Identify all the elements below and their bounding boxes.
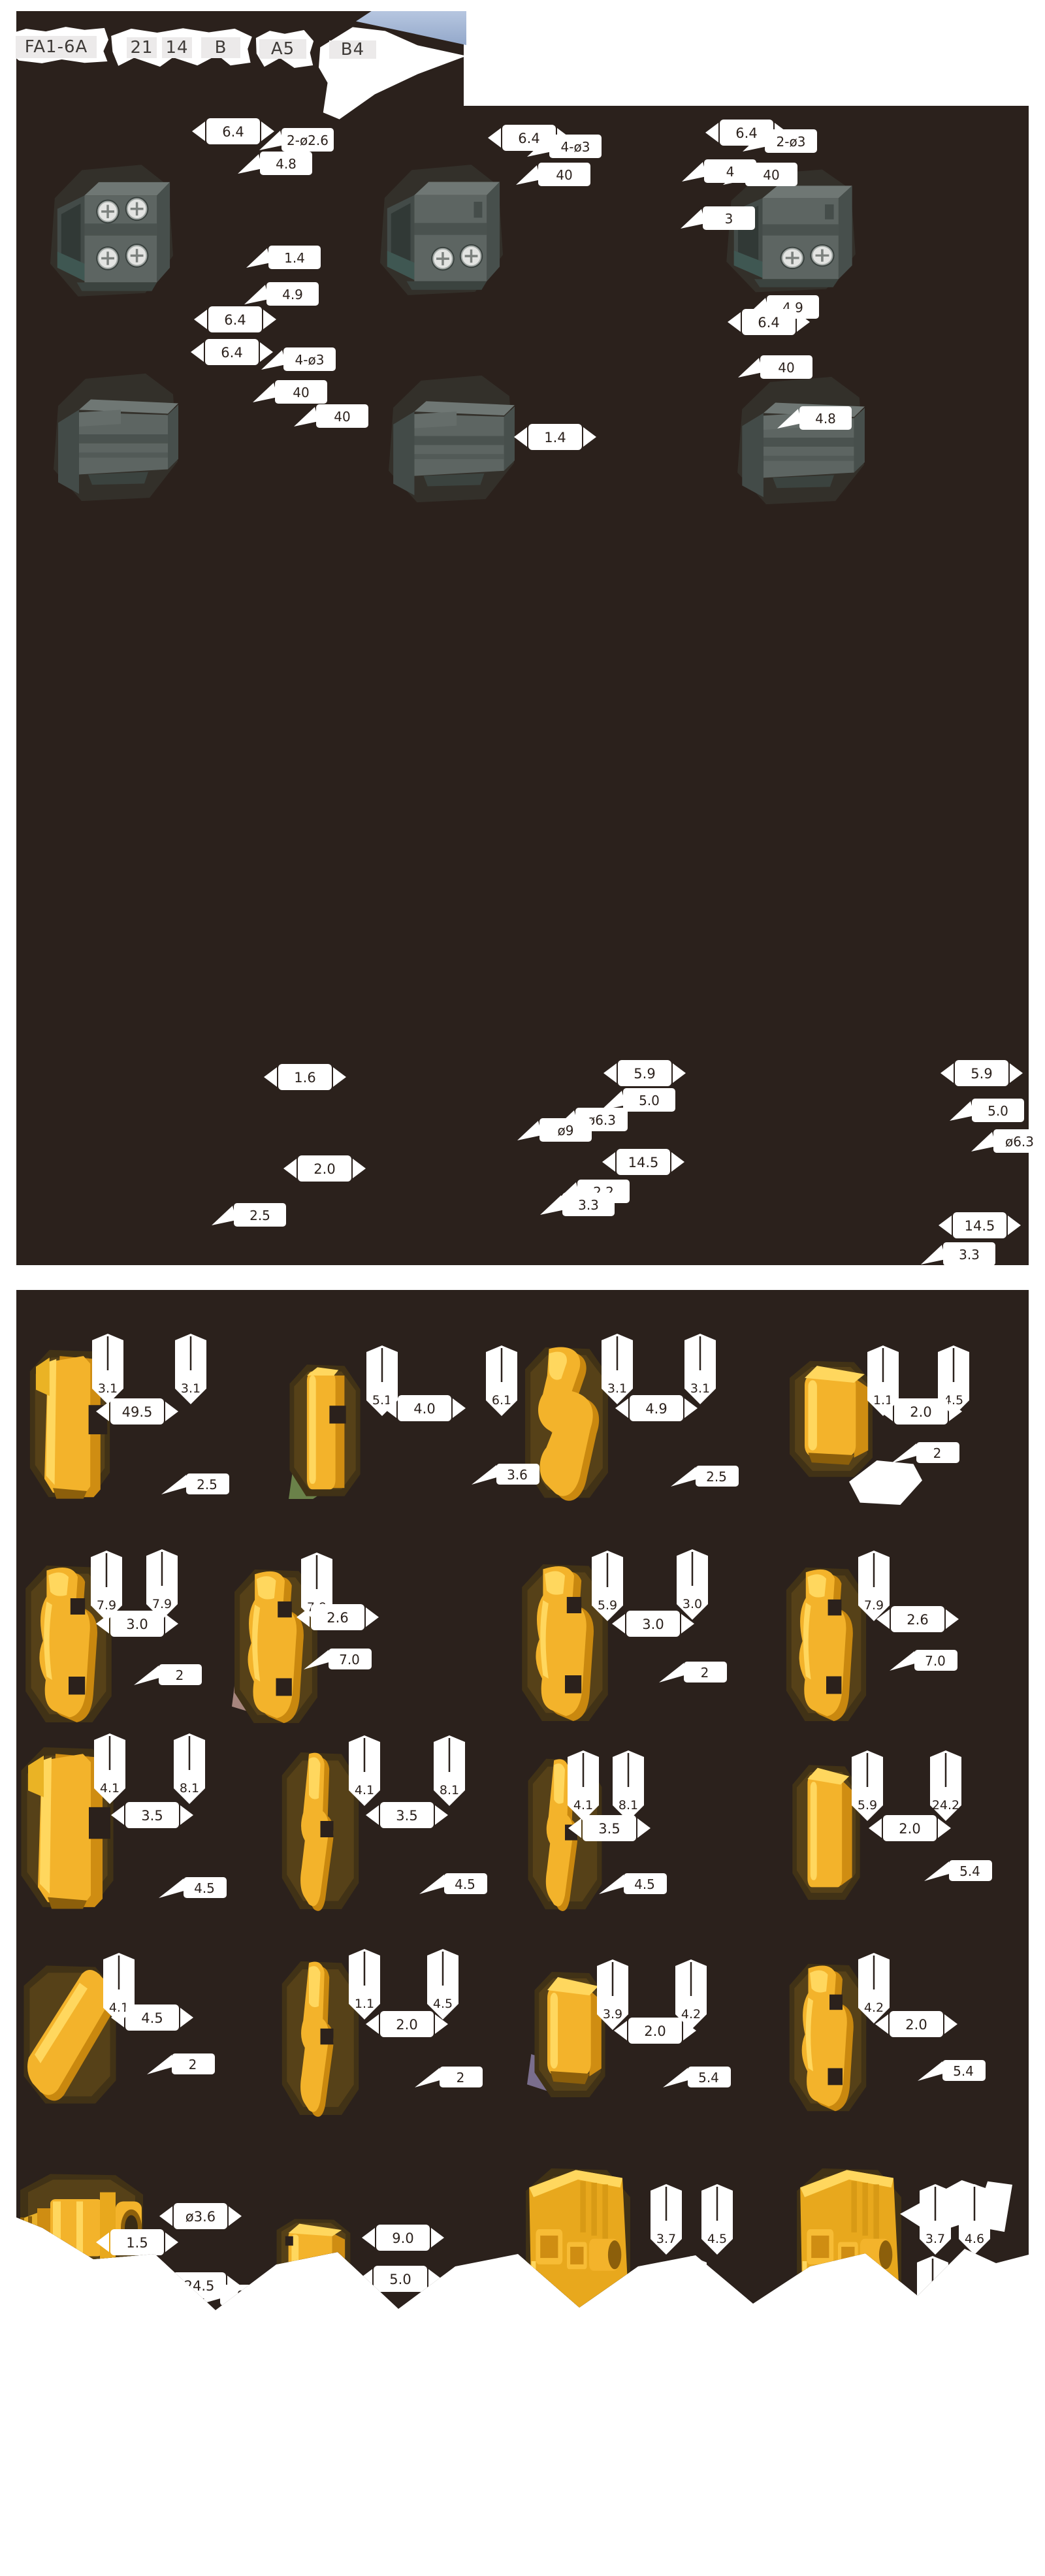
tab-label: 14 [165, 38, 188, 57]
dimension-value: 1.4 [544, 430, 566, 445]
dimension-value: ø9 [558, 1123, 574, 1138]
dimension-value: 2.6 [327, 1610, 348, 1626]
dimension-value: 4.5 [455, 1876, 475, 1892]
dimension-callout: 3.3 [920, 1240, 998, 1267]
dimension-value: 2.5 [197, 1477, 217, 1492]
dimension-callout: 4.1 [91, 1732, 128, 1805]
dimension-callout: 8.1 [171, 1732, 208, 1805]
dimension-value: 2.5 [706, 1469, 727, 1485]
dimension-callout: 4.5 [418, 1871, 490, 1897]
tab-label: 21 [130, 38, 153, 57]
dimension-callout: ø3.6 [158, 2201, 243, 2231]
dimension-callout: 2 [658, 1659, 730, 1685]
tab-label: B4 [341, 40, 364, 59]
dimension-value: 3.1 [181, 1381, 201, 1396]
dimension-callout: 9.6 [917, 2289, 954, 2362]
dimension-value: 4.5 [194, 1880, 215, 1896]
dimension-callout: 9.8 [669, 2289, 705, 2362]
dimension-callout: 3.0 [611, 1609, 696, 1639]
dimension-callout: 3.1 [89, 1332, 126, 1406]
tab-label: FA1-6A [25, 37, 88, 57]
dimension-value: 6.4 [758, 315, 779, 330]
page-margin [464, 11, 1029, 106]
dimension-value: 2.5 [249, 1208, 270, 1223]
dimension-value: 2.6 [907, 1612, 928, 1628]
dimension-value: 5.0 [988, 1103, 1008, 1119]
dimension-callout: 2 [413, 2064, 485, 2090]
dimension-value: 4.5 [634, 1876, 655, 1892]
dimension-value: 3.5 [396, 1808, 417, 1824]
dimension-callout: 3.0 [95, 1609, 180, 1639]
dimension-callout: 1.4 [245, 243, 323, 270]
dimension-value: 2.0 [644, 2023, 666, 2039]
dimension-value: 2 [176, 1667, 184, 1683]
tab-b: B [201, 37, 240, 58]
dimension-value: 4.1 [100, 1781, 120, 1795]
dimension-callout: 2.5 [210, 1200, 289, 1228]
dimension-value: 2.0 [899, 1821, 920, 1837]
dimension-callout: 5.9 [939, 1058, 1024, 1088]
dimension-value: 2 [701, 1665, 709, 1681]
dimension-callout: 7.0 [302, 1646, 374, 1672]
dimension-value: ø3.6 [185, 2209, 216, 2225]
dimension-value: 40 [334, 409, 350, 425]
dimension-value: 7.7 [923, 2304, 942, 2318]
tab-label: B [215, 38, 227, 57]
part-render-chassis [794, 2165, 905, 2325]
dimension-callout: 3.3 [539, 1190, 617, 1217]
dimension-value: 5.4 [698, 2070, 719, 2085]
dimension-callout: 9.0 [361, 2223, 445, 2253]
dimension-callout: 5.0 [948, 1096, 1027, 1123]
tab-b4: B4 [329, 40, 376, 59]
dimension-callout: 5.9 [849, 1749, 886, 1822]
dimension-value: 40 [293, 385, 309, 400]
dimension-value: 5.9 [971, 1066, 992, 1082]
machine-render [46, 158, 175, 302]
dimension-callout: 4.8 [776, 404, 854, 431]
dimension-value: 8.1 [180, 1781, 199, 1795]
dimension-callout: ø9 [516, 1116, 594, 1143]
dimension-value: 7.0 [925, 1653, 946, 1669]
machine-render [376, 158, 505, 300]
dimension-callout: 40 [251, 378, 330, 405]
dimension-callout: 49.5 [95, 1396, 180, 1426]
dimension-callout: 2.0 [867, 1813, 952, 1843]
dimension-value: 2-ø3 [777, 134, 806, 150]
dimension-callout: 2.5 [669, 1463, 741, 1489]
dimension-callout: 4.0 [382, 1393, 467, 1423]
dimension-callout: 2 [146, 2051, 217, 2077]
dimension-value: 3.6 [507, 1467, 528, 1483]
dimension-callout: 24.2 [927, 1749, 964, 1822]
dimension-callout: 2.5 [160, 1471, 232, 1497]
dimension-value: 2.0 [313, 1161, 335, 1177]
dimension-callout: 3.5 [567, 1813, 652, 1843]
dimension-value: 3.0 [642, 1617, 664, 1632]
dimension-callout: 40 [293, 402, 371, 429]
dimension-value: 3.7 [925, 2232, 945, 2246]
dimension-value: 5.0 [639, 1093, 660, 1108]
dimension-value: 1.6 [294, 1070, 315, 1086]
dimension-callout: 4.8 [236, 149, 315, 176]
tab-14: 14 [162, 37, 192, 58]
dimension-callout: 3.7 [648, 2183, 684, 2256]
dimension-value: 7.0 [339, 1652, 360, 1667]
dimension-value: 1.5 [126, 2235, 148, 2251]
tab-a5: A5 [259, 39, 306, 59]
dimension-callout: 2.0 [282, 1153, 367, 1183]
dimension-callout: 1.6 [263, 1062, 347, 1092]
dimension-callout: 5.9 [602, 1058, 687, 1088]
dimension-value: 14.5 [965, 1218, 995, 1234]
dimension-callout: 14.5 [937, 1210, 1022, 1240]
tab-label: A5 [271, 39, 295, 59]
dimension-callout: 8.1 [431, 1734, 468, 1807]
dimension-value: 3.5 [141, 1808, 163, 1824]
dimension-value: 4.5 [141, 2010, 163, 2026]
dimension-value: 8 [237, 2288, 246, 2304]
dimension-value: 40 [556, 167, 572, 183]
dimension-value: 4-ø3 [561, 139, 590, 155]
dimension-callout: 7.0 [888, 1647, 960, 1673]
dimension-value: 2 [933, 1445, 942, 1461]
dimension-value: 3.1 [98, 1381, 118, 1396]
machine-render [49, 367, 180, 506]
dimension-value: 4.9 [282, 287, 303, 302]
dimension-value: 9.0 [392, 2230, 413, 2246]
dimension-value: 8.1 [619, 1798, 638, 1812]
dimension-value: 1.4 [284, 250, 305, 266]
dimension-callout: 4.5 [598, 1871, 669, 1897]
dimension-value: 6.4 [221, 345, 242, 361]
dimension-callout: 5.4 [923, 1858, 995, 1884]
part-render-box [274, 2217, 353, 2296]
dimension-value: 3.5 [598, 1821, 620, 1837]
dimension-callout: 6.4 [193, 304, 278, 334]
dimension-value: 6.4 [224, 312, 246, 328]
dimension-callout: 8 [194, 2282, 266, 2308]
dimension-value: 4.0 [413, 1401, 435, 1417]
dimension-value: ø6.3 [1005, 1134, 1034, 1150]
dimension-value: 2 [189, 2057, 197, 2072]
catalog-panel-top: FA1-6A 21 14 B A5 B4 6.4 2-ø2.6 4.8 1.4 … [16, 11, 1029, 1265]
dimension-value: 3.3 [959, 1247, 980, 1263]
dimension-value: 3.7 [656, 2232, 676, 2246]
machine-render [733, 370, 866, 509]
dimension-callout: 14.5 [601, 1147, 686, 1177]
dimension-callout: 4.5 [157, 1875, 229, 1901]
dimension-value: 49.5 [122, 1404, 153, 1420]
dimension-callout: 1.5 [95, 2227, 180, 2257]
part-render-chassis [522, 2165, 634, 2325]
dimension-value: 5.0 [389, 2272, 411, 2287]
dimension-value: 24.2 [932, 1798, 959, 1812]
dimension-callout: 4.6 [956, 2183, 993, 2256]
machine-render [384, 369, 516, 507]
dimension-value: 5.4 [953, 2063, 974, 2079]
dimension-callout: 2.6 [875, 1604, 960, 1634]
dimension-callout: 3.5 [110, 1800, 195, 1830]
dimension-value: 2 [457, 2070, 465, 2085]
dimension-value: 4.1 [355, 1783, 374, 1797]
dimension-value: 3 [725, 211, 733, 227]
dimension-value: 3.0 [126, 1617, 148, 1632]
dimension-value: 4-ø3 [295, 352, 325, 368]
dimension-value: 4.8 [276, 156, 297, 172]
dimension-value: 5.4 [959, 1863, 980, 1879]
dimension-value: 4.8 [815, 411, 836, 427]
dimension-callout: 40 [737, 353, 815, 380]
dimension-callout: 3.1 [172, 1332, 209, 1406]
dimension-value: 40 [778, 360, 794, 376]
dimension-callout: ø6.3 [970, 1127, 1045, 1154]
dimension-callout: 3 [679, 204, 758, 231]
dimension-callout: 6.4 [726, 307, 811, 337]
dimension-callout: 4-ø3 [526, 132, 604, 159]
tab-fa1-6a: FA1-6A [16, 36, 97, 58]
dimension-callout: 4.1 [346, 1734, 383, 1807]
dimension-callout: 4.5 [110, 2003, 195, 2033]
dimension-callout: 1.4 [513, 422, 598, 452]
dimension-callout: 2.0 [364, 2009, 449, 2039]
dimension-callout: 8.1 [610, 1749, 647, 1822]
catalog-page: FA1-6A 21 14 B A5 B4 6.4 2-ø2.6 4.8 1.4 … [0, 0, 1045, 2576]
dimension-value: 2-ø2.6 [287, 133, 329, 148]
dimension-value: 6.4 [222, 124, 244, 140]
dimension-value: 9.6 [925, 2338, 945, 2353]
dimension-value: 4.9 [645, 1401, 667, 1417]
dimension-callout: 2-ø3 [741, 127, 820, 154]
dimension-callout: 2 [133, 1662, 204, 1688]
dimension-callout: 5.0 [358, 2264, 443, 2294]
part-render-bar [287, 1362, 362, 1499]
dimension-callout: 2.0 [878, 1396, 963, 1426]
dimension-callout: 2 [890, 1440, 962, 1466]
dimension-value: 2.0 [910, 1404, 931, 1420]
dimension-value: 2.0 [396, 2017, 417, 2033]
dimension-value: 6.1 [492, 1393, 511, 1408]
dimension-value: 2.0 [905, 2017, 927, 2033]
dimension-value: 5.9 [858, 1798, 877, 1812]
dimension-callout: 5.4 [662, 2064, 733, 2090]
dimension-value: 5.8 [681, 2304, 701, 2318]
dimension-value: 3.3 [578, 1197, 599, 1213]
dimension-value: 4.6 [965, 2232, 984, 2246]
dimension-callout: 4.9 [614, 1393, 699, 1423]
dimension-value: 14.5 [628, 1155, 659, 1170]
dimension-callout: 3.6 [470, 1461, 542, 1487]
dimension-callout: 4.9 [243, 280, 321, 307]
dimension-value: 5.9 [634, 1066, 655, 1082]
dimension-callout: 40 [722, 160, 800, 187]
dimension-callout: 2.0 [874, 2009, 959, 2039]
dimension-value: 40 [763, 167, 779, 183]
tab-21: 21 [127, 37, 157, 58]
dimension-callout: 4.1 [565, 1749, 602, 1822]
dimension-callout: 5.4 [916, 2057, 988, 2084]
dimension-callout: 2.0 [613, 2016, 698, 2046]
dimension-callout: 3.5 [364, 1800, 449, 1830]
dimension-value: 9.8 [677, 2338, 697, 2353]
part-render-block [787, 1359, 875, 1479]
dimension-value: 4.5 [707, 2232, 727, 2246]
dimension-callout: 2.6 [295, 1602, 380, 1632]
dimension-callout: 4.5 [699, 2183, 735, 2256]
dimension-callout: 40 [515, 160, 593, 187]
dimension-callout: 5.8 [673, 2255, 709, 2328]
catalog-panel-bottom: 3.1 3.1 49.5 2.5 5.1 6.1 4.0 3.6 3.1 3.1… [16, 1290, 1029, 2328]
dimension-value: 8.1 [440, 1783, 459, 1797]
dimension-callout: 6.1 [483, 1344, 520, 1417]
dimension-value: 4.1 [573, 1798, 593, 1812]
dimension-callout: 3.7 [917, 2183, 954, 2256]
dimension-callout: 4-ø3 [260, 345, 338, 372]
